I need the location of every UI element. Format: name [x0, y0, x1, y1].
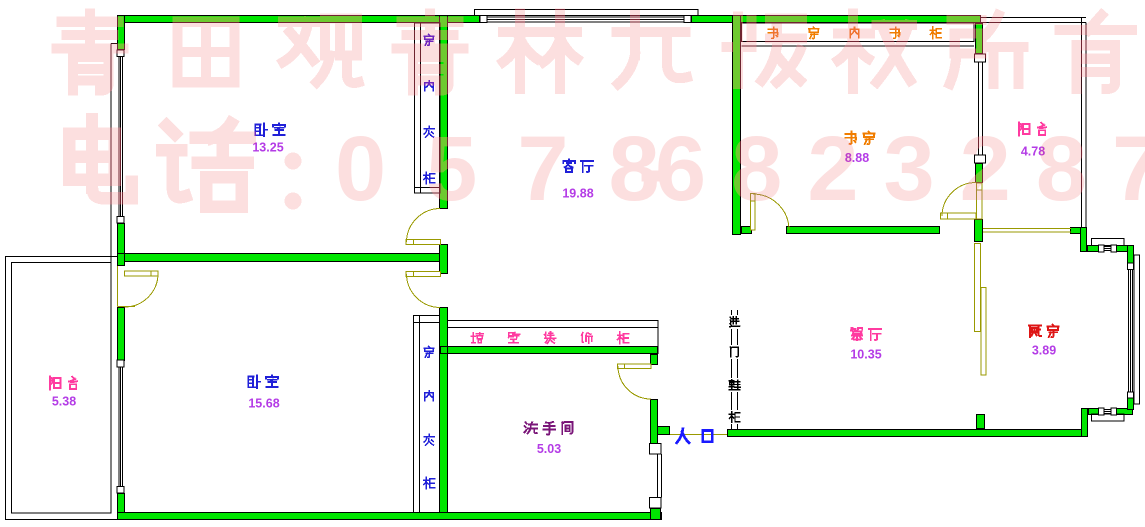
svg-text:10.35: 10.35 [850, 348, 881, 362]
svg-text:15.68: 15.68 [248, 397, 279, 411]
svg-text:5.38: 5.38 [52, 395, 76, 409]
svg-text:5.03: 5.03 [537, 442, 561, 456]
svg-text:6823287: 6823287 [655, 118, 1145, 220]
svg-text:3.89: 3.89 [1032, 344, 1056, 358]
svg-text:13.25: 13.25 [252, 141, 283, 155]
